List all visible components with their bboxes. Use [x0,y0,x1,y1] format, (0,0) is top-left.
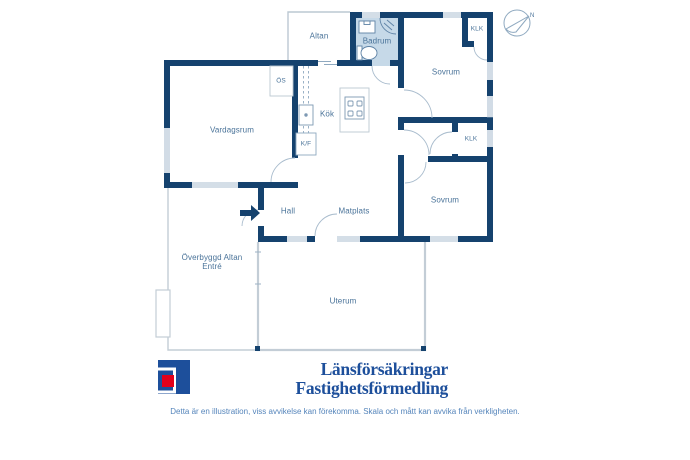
compass-icon: N [504,10,534,36]
bathroom-door-opening [372,60,390,66]
room-label-matplats: Matplats [338,207,369,216]
room-label-kf: K/F [301,141,311,148]
room-label-badrum: Badrum [363,37,392,46]
room-label-sovrum-bottom: Sovrum [431,196,459,205]
room-label-overbyggd-line2: Entré [202,262,222,271]
room-label-altan: Altan [310,32,329,41]
room-label-kok: Kök [320,110,334,119]
compass-north-label: N [530,13,534,19]
uterum-corner-post [255,346,260,351]
toilet-icon [357,46,377,60]
room-label-klk-top: KLK [471,26,484,33]
entrance-arrow-icon [240,205,260,221]
room-label-vardagsrum: Vardagsrum [210,126,254,135]
room-label-klk-mid: KLK [465,136,478,143]
brand-mark-icon [150,360,190,398]
room-label-overbyggd-altan: Överbyggd AltanEntré [182,253,243,271]
room-label-os: ÖS [276,78,286,85]
room-label-hall: Hall [281,207,295,216]
disclaimer-text: Detta är en illustration, viss avvikelse… [0,407,690,416]
sink-icon [359,21,375,33]
room-label-uterum: Uterum [330,297,357,306]
kitchen-island [340,88,369,132]
floorplan-illustration: N Altan Badrum KLK Sovrum ÖS Vardagsrum … [0,0,690,460]
compass-needle [506,16,529,32]
kitchen-sink-icon [299,105,313,125]
altan-sliding-door [318,62,337,65]
altan-steps [156,290,170,337]
room-label-overbyggd-line1: Överbyggd Altan [182,253,243,262]
brand-wordmark: Länsförsäkringar Fastighetsförmedling [296,360,448,398]
room-label-sovrum-top: Sovrum [432,68,460,77]
brand-line2: Fastighetsförmedling [296,379,448,398]
brand-logo: Länsförsäkringar Fastighetsförmedling [150,360,448,398]
uterum-corner-post [421,346,426,351]
brand-line1: Länsförsäkringar [296,360,448,379]
